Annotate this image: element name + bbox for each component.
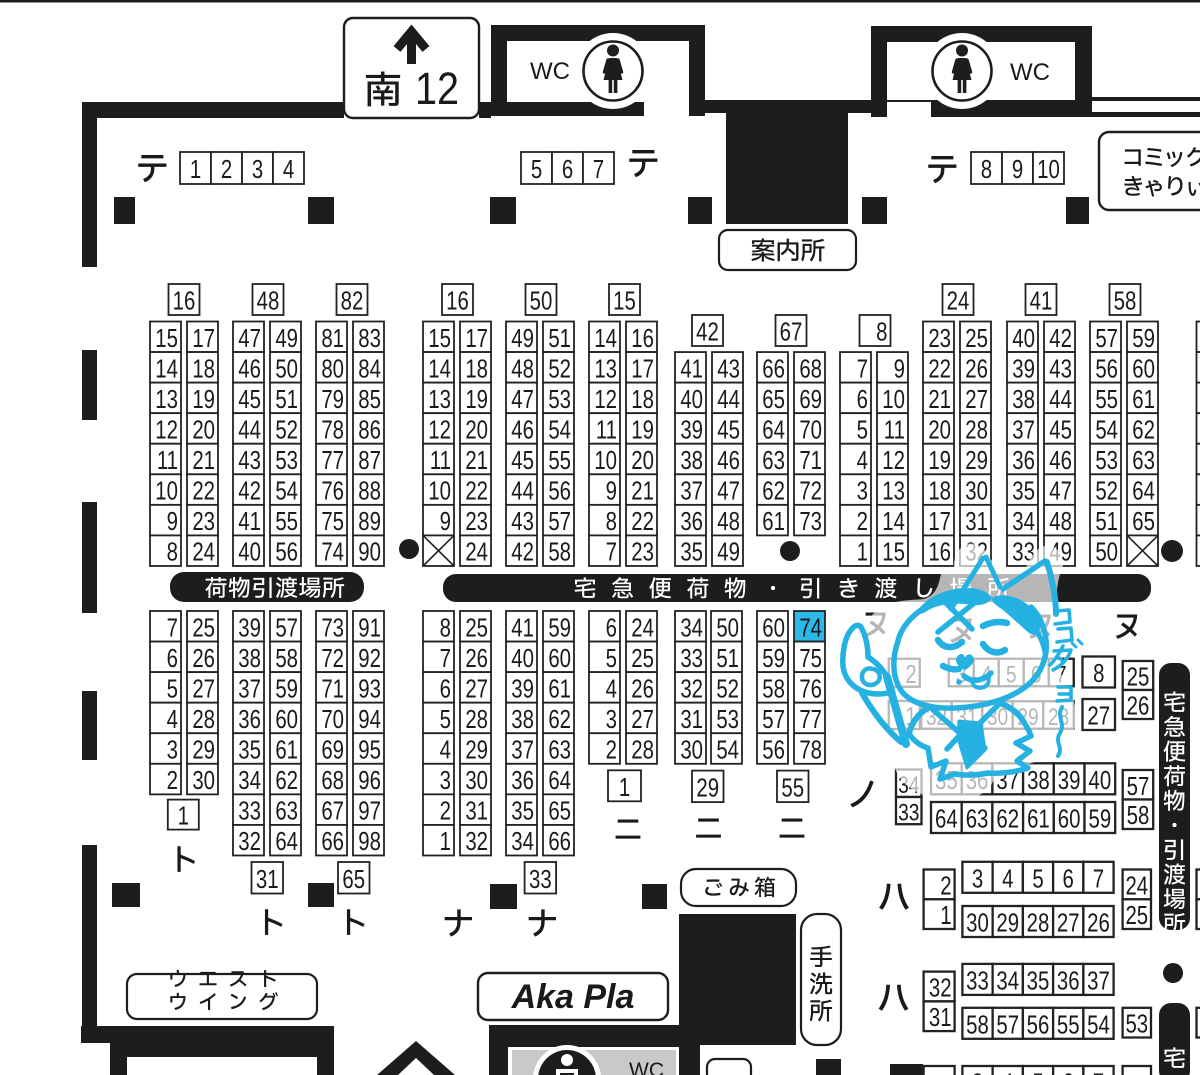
svg-text:26: 26 <box>965 354 988 383</box>
svg-text:49: 49 <box>511 324 534 353</box>
svg-text:30: 30 <box>192 766 215 795</box>
svg-text:15: 15 <box>428 324 451 353</box>
svg-text:33: 33 <box>238 796 261 825</box>
svg-text:56: 56 <box>1095 354 1118 383</box>
svg-text:2: 2 <box>440 796 451 825</box>
svg-text:28: 28 <box>465 705 488 734</box>
svg-text:43: 43 <box>1049 354 1072 383</box>
svg-text:4: 4 <box>167 705 178 734</box>
svg-text:13: 13 <box>882 476 905 505</box>
svg-text:39: 39 <box>680 415 703 444</box>
svg-text:21: 21 <box>192 446 215 475</box>
svg-text:3: 3 <box>167 735 178 764</box>
svg-text:14: 14 <box>594 324 617 353</box>
svg-text:42: 42 <box>511 538 534 567</box>
svg-text:19: 19 <box>192 385 215 414</box>
svg-text:18: 18 <box>928 476 951 505</box>
svg-text:5: 5 <box>1032 864 1043 893</box>
svg-text:43: 43 <box>511 507 534 536</box>
svg-text:58: 58 <box>1127 801 1150 830</box>
svg-text:37: 37 <box>238 674 261 703</box>
svg-text:7: 7 <box>440 644 451 673</box>
svg-text:62: 62 <box>1132 415 1155 444</box>
svg-text:49: 49 <box>717 538 740 567</box>
svg-text:1: 1 <box>190 155 201 184</box>
svg-text:8: 8 <box>1093 659 1104 688</box>
svg-text:71: 71 <box>321 674 344 703</box>
svg-text:21: 21 <box>465 446 488 475</box>
svg-text:25: 25 <box>631 644 654 673</box>
svg-text:16: 16 <box>173 286 196 315</box>
svg-text:56: 56 <box>762 735 785 764</box>
svg-text:78: 78 <box>799 735 822 764</box>
svg-text:17: 17 <box>928 507 951 536</box>
svg-text:53: 53 <box>716 705 739 734</box>
svg-text:80: 80 <box>321 354 344 383</box>
svg-text:12: 12 <box>428 415 451 444</box>
svg-text:4: 4 <box>283 155 294 184</box>
svg-text:91: 91 <box>358 613 381 642</box>
svg-text:66: 66 <box>321 827 344 856</box>
svg-text:19: 19 <box>928 446 951 475</box>
svg-text:40: 40 <box>511 644 534 673</box>
svg-text:67: 67 <box>321 796 344 825</box>
svg-text:10: 10 <box>882 385 905 414</box>
svg-text:23: 23 <box>192 507 215 536</box>
svg-text:53: 53 <box>548 385 571 414</box>
svg-text:54: 54 <box>716 735 739 764</box>
svg-text:4: 4 <box>857 446 868 475</box>
svg-text:4: 4 <box>440 735 451 764</box>
svg-text:52: 52 <box>548 354 571 383</box>
svg-text:6: 6 <box>1063 1068 1074 1075</box>
svg-text:3: 3 <box>857 476 868 505</box>
svg-text:44: 44 <box>238 415 261 444</box>
svg-text:60: 60 <box>762 613 785 642</box>
svg-text:34: 34 <box>511 827 534 856</box>
svg-text:21: 21 <box>631 476 654 505</box>
svg-text:37: 37 <box>1012 415 1035 444</box>
svg-text:50: 50 <box>530 286 553 315</box>
svg-text:6: 6 <box>440 674 451 703</box>
svg-text:17: 17 <box>631 354 654 383</box>
svg-text:22: 22 <box>928 354 951 383</box>
svg-text:62: 62 <box>275 766 298 795</box>
svg-text:7: 7 <box>1093 864 1104 893</box>
svg-text:32: 32 <box>238 827 261 856</box>
svg-text:21: 21 <box>928 385 951 414</box>
svg-text:2: 2 <box>606 735 617 764</box>
svg-text:4: 4 <box>606 674 617 703</box>
svg-text:5: 5 <box>440 705 451 734</box>
svg-text:26: 26 <box>465 644 488 673</box>
svg-text:10: 10 <box>428 476 451 505</box>
svg-text:27: 27 <box>631 705 654 734</box>
svg-text:61: 61 <box>762 507 785 536</box>
svg-text:44: 44 <box>1049 385 1072 414</box>
svg-text:10: 10 <box>1037 155 1060 184</box>
svg-text:35: 35 <box>1012 476 1035 505</box>
svg-text:1: 1 <box>857 538 868 567</box>
svg-text:52: 52 <box>716 674 739 703</box>
svg-text:38: 38 <box>1027 766 1050 795</box>
svg-text:47: 47 <box>511 385 534 414</box>
svg-text:39: 39 <box>1058 766 1081 795</box>
svg-text:60: 60 <box>548 644 571 673</box>
svg-text:8: 8 <box>981 155 992 184</box>
svg-text:34: 34 <box>238 766 261 795</box>
svg-text:3: 3 <box>440 766 451 795</box>
svg-text:31: 31 <box>929 1003 952 1032</box>
svg-text:65: 65 <box>762 385 785 414</box>
svg-text:33: 33 <box>529 865 552 894</box>
svg-text:51: 51 <box>275 385 298 414</box>
svg-text:12: 12 <box>155 415 178 444</box>
svg-text:27: 27 <box>965 385 988 414</box>
svg-text:23: 23 <box>465 507 488 536</box>
svg-text:54: 54 <box>275 476 298 505</box>
svg-text:29: 29 <box>996 908 1019 937</box>
svg-text:45: 45 <box>238 385 261 414</box>
svg-text:17: 17 <box>465 324 488 353</box>
svg-text:46: 46 <box>1049 446 1072 475</box>
svg-text:28: 28 <box>192 705 215 734</box>
svg-text:8: 8 <box>440 613 451 642</box>
svg-text:11: 11 <box>596 415 617 444</box>
svg-text:26: 26 <box>631 674 654 703</box>
svg-text:11: 11 <box>884 415 905 444</box>
svg-text:40: 40 <box>1089 766 1112 795</box>
svg-text:51: 51 <box>716 644 739 673</box>
svg-text:12: 12 <box>882 446 905 475</box>
svg-text:7: 7 <box>1093 1068 1104 1075</box>
svg-text:32: 32 <box>680 674 703 703</box>
svg-text:58: 58 <box>1114 286 1137 315</box>
svg-text:42: 42 <box>1049 324 1072 353</box>
svg-text:23: 23 <box>631 538 654 567</box>
svg-text:22: 22 <box>465 476 488 505</box>
svg-text:62: 62 <box>548 705 571 734</box>
svg-text:18: 18 <box>465 354 488 383</box>
svg-text:5: 5 <box>167 674 178 703</box>
svg-text:42: 42 <box>696 317 719 346</box>
svg-text:40: 40 <box>1012 324 1035 353</box>
svg-text:1: 1 <box>619 773 630 802</box>
svg-text:39: 39 <box>1012 354 1035 383</box>
svg-text:28: 28 <box>965 415 988 444</box>
svg-text:6: 6 <box>167 644 178 673</box>
svg-text:WC: WC <box>530 58 570 85</box>
svg-text:56: 56 <box>548 476 571 505</box>
svg-text:95: 95 <box>358 735 381 764</box>
svg-text:17: 17 <box>192 324 215 353</box>
svg-text:66: 66 <box>548 827 571 856</box>
svg-text:43: 43 <box>238 446 261 475</box>
svg-text:31: 31 <box>965 507 988 536</box>
svg-text:11: 11 <box>430 446 451 475</box>
svg-text:60: 60 <box>275 705 298 734</box>
svg-text:28: 28 <box>1027 908 1050 937</box>
svg-text:27: 27 <box>1057 908 1080 937</box>
svg-text:47: 47 <box>717 476 740 505</box>
svg-text:57: 57 <box>1095 324 1118 353</box>
svg-text:15: 15 <box>155 324 178 353</box>
svg-text:WC: WC <box>1010 59 1050 86</box>
svg-text:30: 30 <box>680 735 703 764</box>
svg-text:55: 55 <box>275 507 298 536</box>
svg-text:29: 29 <box>696 773 719 802</box>
svg-text:65: 65 <box>548 796 571 825</box>
svg-text:96: 96 <box>358 766 381 795</box>
svg-text:26: 26 <box>1087 908 1110 937</box>
svg-text:87: 87 <box>358 446 381 475</box>
svg-text:54: 54 <box>548 415 571 444</box>
svg-text:25: 25 <box>965 324 988 353</box>
svg-text:92: 92 <box>358 644 381 673</box>
svg-text:44: 44 <box>511 476 534 505</box>
svg-text:36: 36 <box>680 507 703 536</box>
svg-text:22: 22 <box>631 507 654 536</box>
svg-text:90: 90 <box>358 538 381 567</box>
svg-text:2: 2 <box>857 507 868 536</box>
svg-text:59: 59 <box>1132 324 1155 353</box>
svg-text:38: 38 <box>680 446 703 475</box>
svg-text:57: 57 <box>275 613 298 642</box>
svg-text:72: 72 <box>321 644 344 673</box>
svg-text:3: 3 <box>606 705 617 734</box>
svg-text:13: 13 <box>155 385 178 414</box>
svg-text:63: 63 <box>275 796 298 825</box>
svg-text:70: 70 <box>321 705 344 734</box>
svg-text:77: 77 <box>799 705 822 734</box>
svg-text:65: 65 <box>342 865 365 894</box>
svg-text:9: 9 <box>606 476 617 505</box>
svg-text:75: 75 <box>321 507 344 536</box>
svg-text:61: 61 <box>1027 804 1050 833</box>
svg-text:35: 35 <box>680 538 703 567</box>
svg-text:11: 11 <box>157 446 178 475</box>
svg-text:3: 3 <box>972 1068 983 1075</box>
svg-text:70: 70 <box>799 415 822 444</box>
svg-text:55: 55 <box>1095 385 1118 414</box>
svg-text:64: 64 <box>1132 476 1155 505</box>
svg-text:7: 7 <box>167 613 178 642</box>
svg-text:73: 73 <box>799 507 822 536</box>
svg-text:25: 25 <box>1127 662 1150 691</box>
svg-text:58: 58 <box>275 644 298 673</box>
svg-text:47: 47 <box>1049 476 1072 505</box>
svg-text:48: 48 <box>511 354 534 383</box>
svg-text:45: 45 <box>1049 415 1072 444</box>
svg-text:89: 89 <box>358 507 381 536</box>
svg-text:78: 78 <box>321 415 344 444</box>
svg-text:14: 14 <box>155 354 178 383</box>
svg-text:47: 47 <box>238 324 261 353</box>
svg-text:25: 25 <box>465 613 488 642</box>
svg-text:85: 85 <box>358 385 381 414</box>
svg-text:1: 1 <box>178 801 189 830</box>
svg-text:61: 61 <box>275 735 298 764</box>
svg-text:4: 4 <box>1002 864 1013 893</box>
svg-text:6: 6 <box>606 613 617 642</box>
svg-text:83: 83 <box>358 324 381 353</box>
svg-text:31: 31 <box>256 865 279 894</box>
svg-text:48: 48 <box>257 286 280 315</box>
svg-text:76: 76 <box>321 476 344 505</box>
svg-text:44: 44 <box>717 385 740 414</box>
svg-text:5: 5 <box>606 644 617 673</box>
svg-text:2: 2 <box>167 766 178 795</box>
svg-text:8: 8 <box>606 507 617 536</box>
svg-text:55: 55 <box>548 446 571 475</box>
svg-text:25: 25 <box>192 613 215 642</box>
svg-text:56: 56 <box>1027 1010 1050 1039</box>
svg-text:27: 27 <box>1087 701 1110 730</box>
svg-text:29: 29 <box>465 735 488 764</box>
svg-text:57: 57 <box>762 705 785 734</box>
svg-text:27: 27 <box>465 674 488 703</box>
svg-text:10: 10 <box>594 446 617 475</box>
svg-text:18: 18 <box>631 385 654 414</box>
svg-text:24: 24 <box>631 613 654 642</box>
svg-text:52: 52 <box>275 415 298 444</box>
svg-text:88: 88 <box>358 476 381 505</box>
svg-text:64: 64 <box>548 766 571 795</box>
svg-text:22: 22 <box>192 476 215 505</box>
svg-text:33: 33 <box>898 799 919 827</box>
svg-text:97: 97 <box>358 796 381 825</box>
svg-text:5: 5 <box>857 415 868 444</box>
svg-text:81: 81 <box>321 324 344 353</box>
svg-text:9: 9 <box>167 507 178 536</box>
svg-text:54: 54 <box>1095 415 1118 444</box>
svg-text:63: 63 <box>966 804 989 833</box>
svg-text:53: 53 <box>275 446 298 475</box>
svg-text:7: 7 <box>593 155 604 184</box>
svg-text:46: 46 <box>511 415 534 444</box>
svg-text:41: 41 <box>511 613 534 642</box>
svg-text:43: 43 <box>717 354 740 383</box>
svg-text:63: 63 <box>548 735 571 764</box>
svg-text:32: 32 <box>929 973 952 1002</box>
svg-text:74: 74 <box>321 538 344 567</box>
svg-text:58: 58 <box>966 1010 989 1039</box>
svg-text:57: 57 <box>548 507 571 536</box>
svg-text:35: 35 <box>511 796 534 825</box>
svg-text:24: 24 <box>192 538 215 567</box>
svg-text:6: 6 <box>562 155 573 184</box>
svg-text:12: 12 <box>415 63 459 114</box>
svg-text:20: 20 <box>465 415 488 444</box>
svg-text:15: 15 <box>613 286 636 315</box>
svg-text:41: 41 <box>1030 286 1053 315</box>
svg-text:50: 50 <box>275 354 298 383</box>
svg-text:9: 9 <box>894 354 905 383</box>
svg-text:63: 63 <box>1132 446 1155 475</box>
svg-text:74: 74 <box>799 613 822 642</box>
svg-text:36: 36 <box>238 705 261 734</box>
svg-text:41: 41 <box>238 507 261 536</box>
svg-text:61: 61 <box>1132 385 1155 414</box>
svg-text:26: 26 <box>1127 691 1150 720</box>
svg-text:86: 86 <box>358 415 381 444</box>
svg-text:38: 38 <box>238 644 261 673</box>
svg-text:35: 35 <box>1027 966 1050 995</box>
svg-text:94: 94 <box>358 705 381 734</box>
svg-text:37: 37 <box>1087 966 1110 995</box>
svg-text:36: 36 <box>511 766 534 795</box>
svg-text:56: 56 <box>275 538 298 567</box>
svg-text:76: 76 <box>799 674 822 703</box>
svg-text:29: 29 <box>965 446 988 475</box>
svg-text:36: 36 <box>1057 966 1080 995</box>
svg-text:13: 13 <box>428 385 451 414</box>
svg-text:18: 18 <box>192 354 215 383</box>
svg-text:53: 53 <box>1125 1010 1148 1039</box>
svg-text:6: 6 <box>857 385 868 414</box>
svg-text:13: 13 <box>594 354 617 383</box>
svg-text:37: 37 <box>511 735 534 764</box>
svg-text:24: 24 <box>465 538 488 567</box>
svg-text:2: 2 <box>940 871 951 900</box>
svg-text:3: 3 <box>972 864 983 893</box>
svg-text:50: 50 <box>1095 538 1118 567</box>
svg-text:84: 84 <box>358 354 381 383</box>
svg-text:36: 36 <box>1012 446 1035 475</box>
svg-text:1: 1 <box>940 901 951 930</box>
svg-text:62: 62 <box>762 476 785 505</box>
svg-text:52: 52 <box>1095 476 1118 505</box>
svg-text:55: 55 <box>1057 1010 1080 1039</box>
svg-text:8: 8 <box>876 317 887 346</box>
svg-text:7: 7 <box>606 538 617 567</box>
svg-text:3: 3 <box>252 155 263 184</box>
svg-text:65: 65 <box>1132 507 1155 536</box>
svg-text:69: 69 <box>799 385 822 414</box>
svg-text:64: 64 <box>275 827 298 856</box>
svg-text:33: 33 <box>680 644 703 673</box>
svg-text:45: 45 <box>511 446 534 475</box>
svg-text:40: 40 <box>680 385 703 414</box>
svg-text:64: 64 <box>762 415 785 444</box>
svg-text:55: 55 <box>781 773 804 802</box>
svg-text:15: 15 <box>882 538 905 567</box>
svg-text:59: 59 <box>762 644 785 673</box>
svg-text:29: 29 <box>192 735 215 764</box>
svg-text:60: 60 <box>1132 354 1155 383</box>
svg-text:68: 68 <box>321 766 344 795</box>
svg-text:25: 25 <box>1125 901 1148 930</box>
svg-text:39: 39 <box>238 613 261 642</box>
svg-text:30: 30 <box>966 908 989 937</box>
svg-text:2: 2 <box>221 155 232 184</box>
svg-text:31: 31 <box>465 796 488 825</box>
svg-text:16: 16 <box>446 286 469 315</box>
svg-text:34: 34 <box>996 966 1019 995</box>
svg-text:48: 48 <box>717 507 740 536</box>
svg-text:31: 31 <box>680 705 703 734</box>
svg-text:16: 16 <box>631 324 654 353</box>
svg-text:14: 14 <box>428 354 451 383</box>
svg-text:40: 40 <box>238 538 261 567</box>
svg-text:9: 9 <box>1012 155 1023 184</box>
svg-text:98: 98 <box>358 827 381 856</box>
svg-text:66: 66 <box>762 354 785 383</box>
svg-text:53: 53 <box>1095 446 1118 475</box>
svg-text:30: 30 <box>465 766 488 795</box>
svg-text:61: 61 <box>548 674 571 703</box>
svg-text:58: 58 <box>548 538 571 567</box>
